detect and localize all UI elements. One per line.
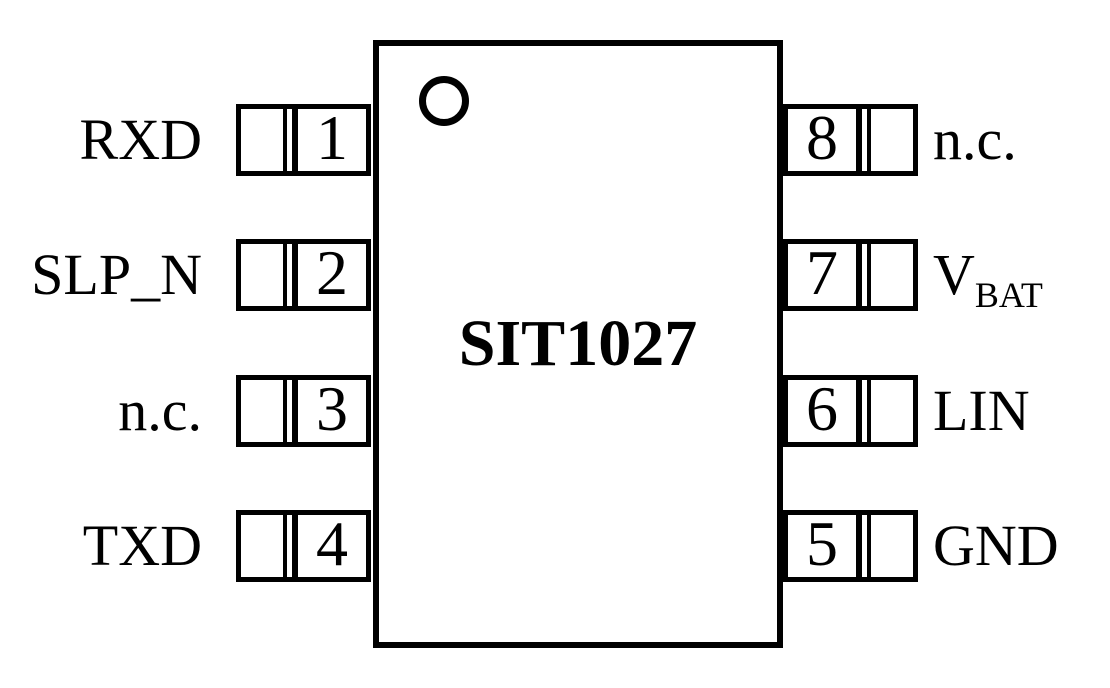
- pin-2-label: SLP_N: [31, 239, 202, 311]
- pin-7-number: 7: [788, 244, 862, 306]
- pin-7-box: 7: [783, 239, 918, 311]
- pin-6-lead-square: [867, 380, 913, 442]
- pin-5-box: 5: [783, 510, 918, 582]
- pin-3-box: 3: [236, 375, 371, 447]
- pin-7-lead-square: [867, 244, 913, 306]
- chip-title: SIT1027: [373, 308, 783, 380]
- pin-3-lead-square: [241, 380, 287, 442]
- pin-6-number: 6: [788, 380, 862, 442]
- pin-1-label: RXD: [80, 104, 202, 176]
- pin-5-number: 5: [788, 515, 862, 577]
- pin-4-number: 4: [292, 515, 366, 577]
- pin-4-label: TXD: [83, 510, 202, 582]
- pin-3-number: 3: [292, 380, 366, 442]
- pin-8-label: n.c.: [933, 104, 1017, 176]
- pin-8-lead-square: [867, 109, 913, 171]
- pin-6-label: LIN: [933, 375, 1030, 447]
- pinout-diagram: SIT1027 1 2 3 4 8 7 6 5 RXD SLP_N n.c. T…: [0, 0, 1110, 688]
- pin-6-box: 6: [783, 375, 918, 447]
- pin-2-lead-square: [241, 244, 287, 306]
- pin-1-lead-square: [241, 109, 287, 171]
- pin-5-label: GND: [933, 510, 1059, 582]
- pin-2-box: 2: [236, 239, 371, 311]
- pin-7-label: VBAT: [933, 239, 1043, 311]
- pin-5-lead-square: [867, 515, 913, 577]
- pin-2-number: 2: [292, 244, 366, 306]
- pin-4-lead-square: [241, 515, 287, 577]
- pin-8-number: 8: [788, 109, 862, 171]
- pin-4-box: 4: [236, 510, 371, 582]
- pin-3-label: n.c.: [118, 375, 202, 447]
- pin-7-label-main: V: [933, 242, 975, 307]
- pin1-indicator-circle-icon: [419, 76, 469, 126]
- pin-1-number: 1: [292, 109, 366, 171]
- pin-7-label-subscript: BAT: [975, 275, 1043, 315]
- pin-8-box: 8: [783, 104, 918, 176]
- pin-1-box: 1: [236, 104, 371, 176]
